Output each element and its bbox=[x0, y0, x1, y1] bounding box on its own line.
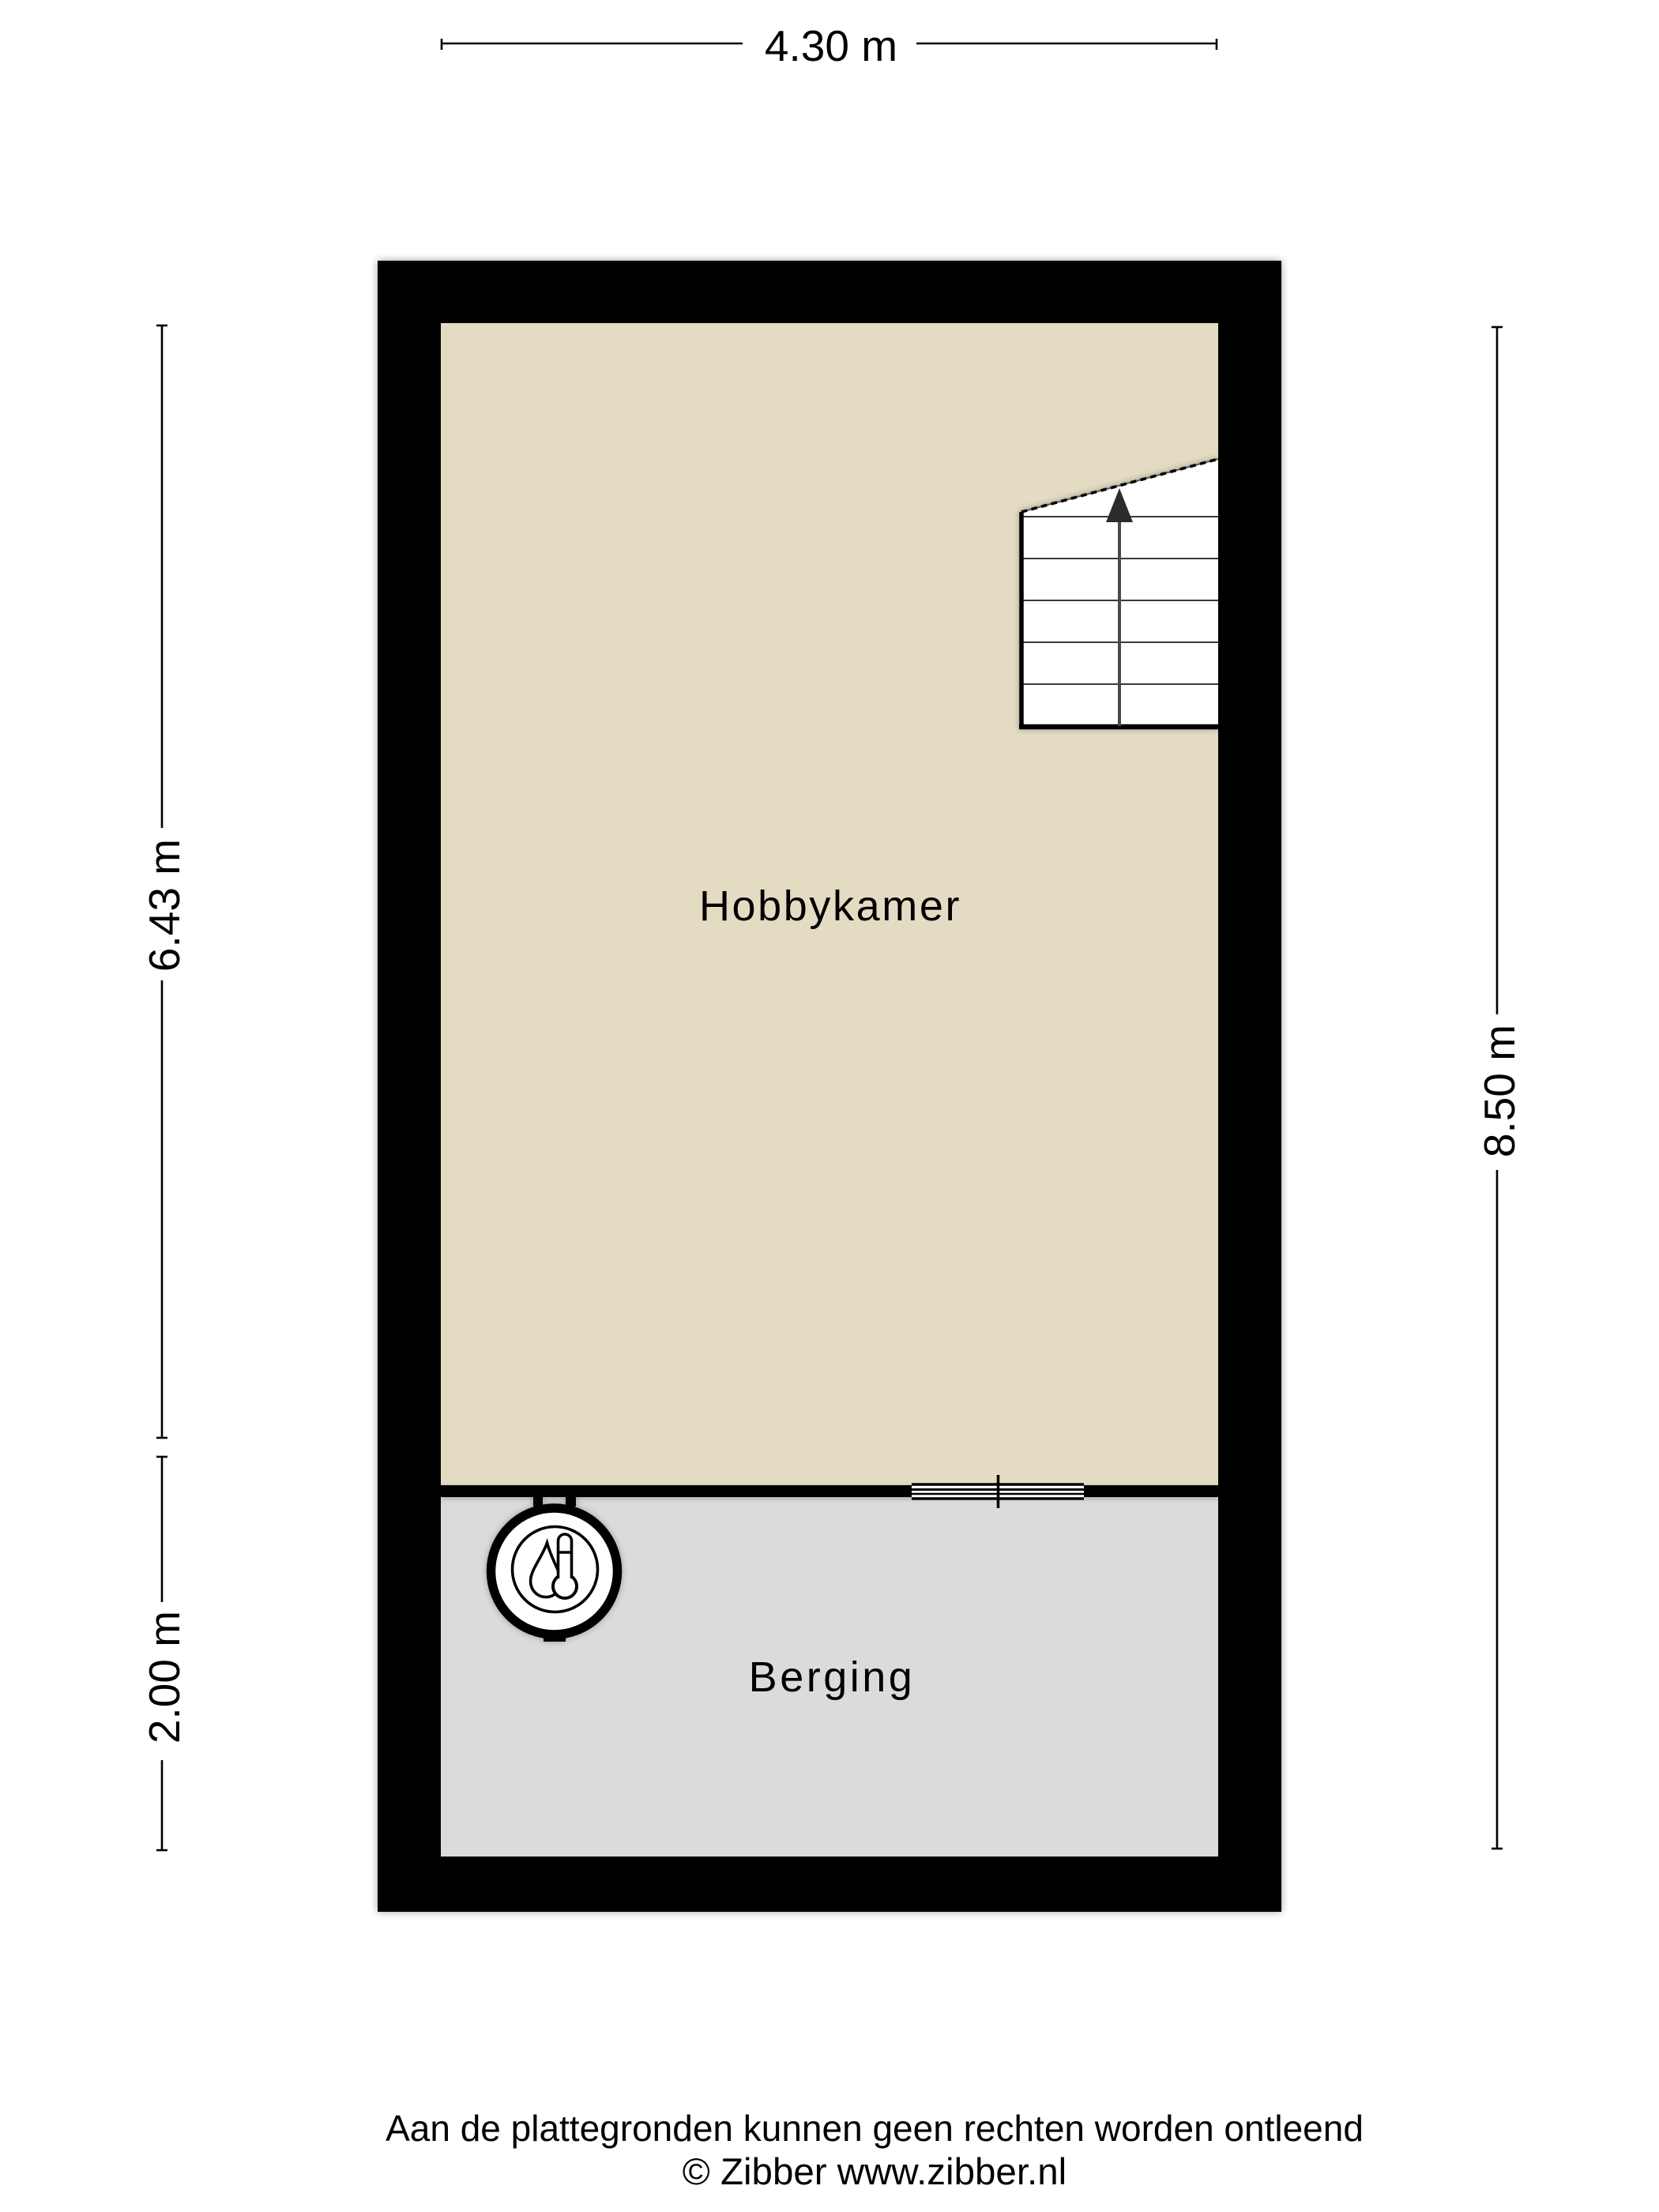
svg-text:8.50 m: 8.50 m bbox=[1475, 1025, 1524, 1157]
svg-text:4.30 m: 4.30 m bbox=[765, 21, 897, 70]
svg-text:6.43 m: 6.43 m bbox=[140, 839, 189, 972]
svg-text:© Zibber www.zibber.nl: © Zibber www.zibber.nl bbox=[683, 2151, 1066, 2193]
svg-text:Berging: Berging bbox=[749, 1653, 916, 1701]
svg-text:2.00 m: 2.00 m bbox=[140, 1611, 189, 1744]
svg-text:Hobbykamer: Hobbykamer bbox=[699, 882, 961, 930]
svg-text:Aan de plattegronden kunnen ge: Aan de plattegronden kunnen geen rechten… bbox=[386, 2108, 1364, 2149]
